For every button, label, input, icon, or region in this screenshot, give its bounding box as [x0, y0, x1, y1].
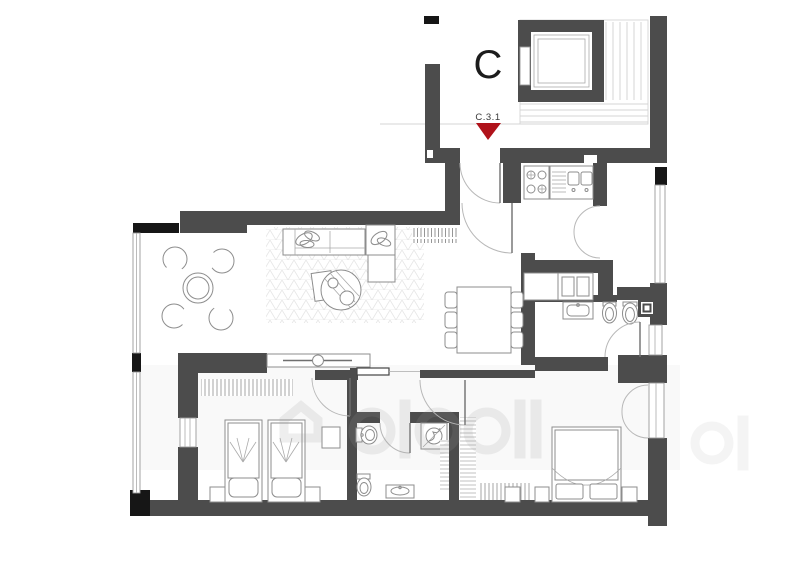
unit-marker-triangle — [476, 123, 501, 140]
bedroom1-window — [180, 418, 196, 447]
small-cabinet — [322, 427, 340, 448]
nightstand-2 — [305, 487, 320, 502]
entry-door — [460, 163, 500, 203]
kitchen-sink — [550, 166, 593, 199]
bath1-door — [605, 322, 640, 357]
twin-bed-1 — [225, 420, 262, 502]
floor-plan-svg: C C.3.1 — [0, 0, 800, 566]
unit-marker-label: C.3.1 — [475, 112, 500, 123]
wardrobe-2 — [478, 483, 530, 500]
shaft — [641, 302, 653, 314]
bench — [505, 487, 520, 502]
building-label: C — [474, 43, 503, 87]
unit-marker: C.3.1 — [475, 112, 501, 140]
armchair-unit — [366, 225, 395, 282]
balcony-window-right — [655, 185, 665, 283]
tv-sideboard — [267, 354, 370, 367]
nightstand-4 — [622, 487, 637, 502]
kitchen-door — [462, 203, 512, 253]
radiator — [412, 228, 458, 243]
double-bed — [552, 427, 621, 502]
nightstand-1 — [210, 487, 225, 502]
toilet — [623, 302, 638, 324]
stairs — [380, 20, 648, 124]
washbasin — [563, 302, 593, 319]
toilet-2 — [357, 474, 371, 496]
washbasin-2 — [386, 485, 414, 498]
bath1-window — [649, 325, 662, 355]
floor-plan: C C.3.1 — [0, 0, 800, 566]
dining-table-set — [445, 287, 523, 353]
kitchen — [524, 166, 593, 300]
bidet — [603, 302, 617, 323]
stove — [524, 166, 549, 199]
watermark-fragment — [695, 420, 744, 466]
elevator — [518, 20, 604, 102]
nightstand-3 — [535, 487, 549, 502]
wardrobe-1 — [201, 379, 293, 396]
storage-cabinets — [524, 273, 593, 300]
round-table-set — [157, 242, 239, 335]
sofa — [283, 229, 365, 255]
balcony-doors — [574, 206, 600, 258]
